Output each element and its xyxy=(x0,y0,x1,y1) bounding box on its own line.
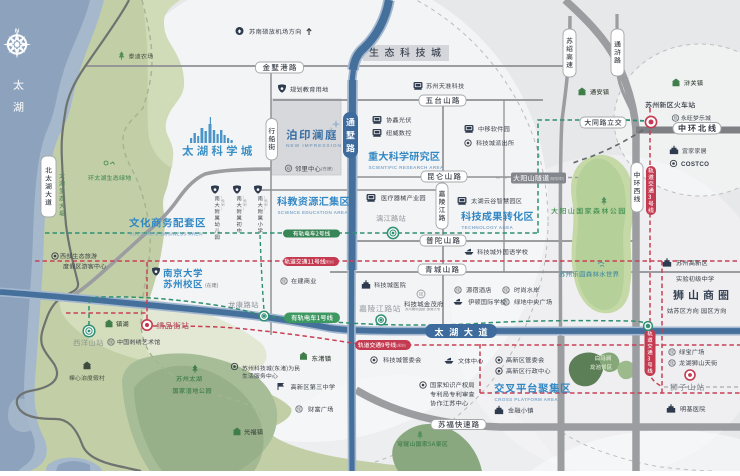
svg-text:CROSS PLATFORM AREA: CROSS PLATFORM AREA xyxy=(495,397,559,402)
svg-text:NEW IMPRESSION: NEW IMPRESSION xyxy=(286,143,342,149)
svg-text:CULTURE & BUSINESS AREA: CULTURE & BUSINESS AREA xyxy=(130,232,203,237)
svg-text:COSTCO: COSTCO xyxy=(681,161,709,168)
svg-text:N: N xyxy=(15,29,19,35)
svg-text:TECHNOLOGY AREA: TECHNOLOGY AREA xyxy=(462,225,514,230)
svg-text:SCIENTIFIC RESEARCH AREA: SCIENTIFIC RESEARCH AREA xyxy=(369,165,444,170)
svg-text:SCIENCE EDUCATION AREA: SCIENCE EDUCATION AREA xyxy=(278,210,349,215)
